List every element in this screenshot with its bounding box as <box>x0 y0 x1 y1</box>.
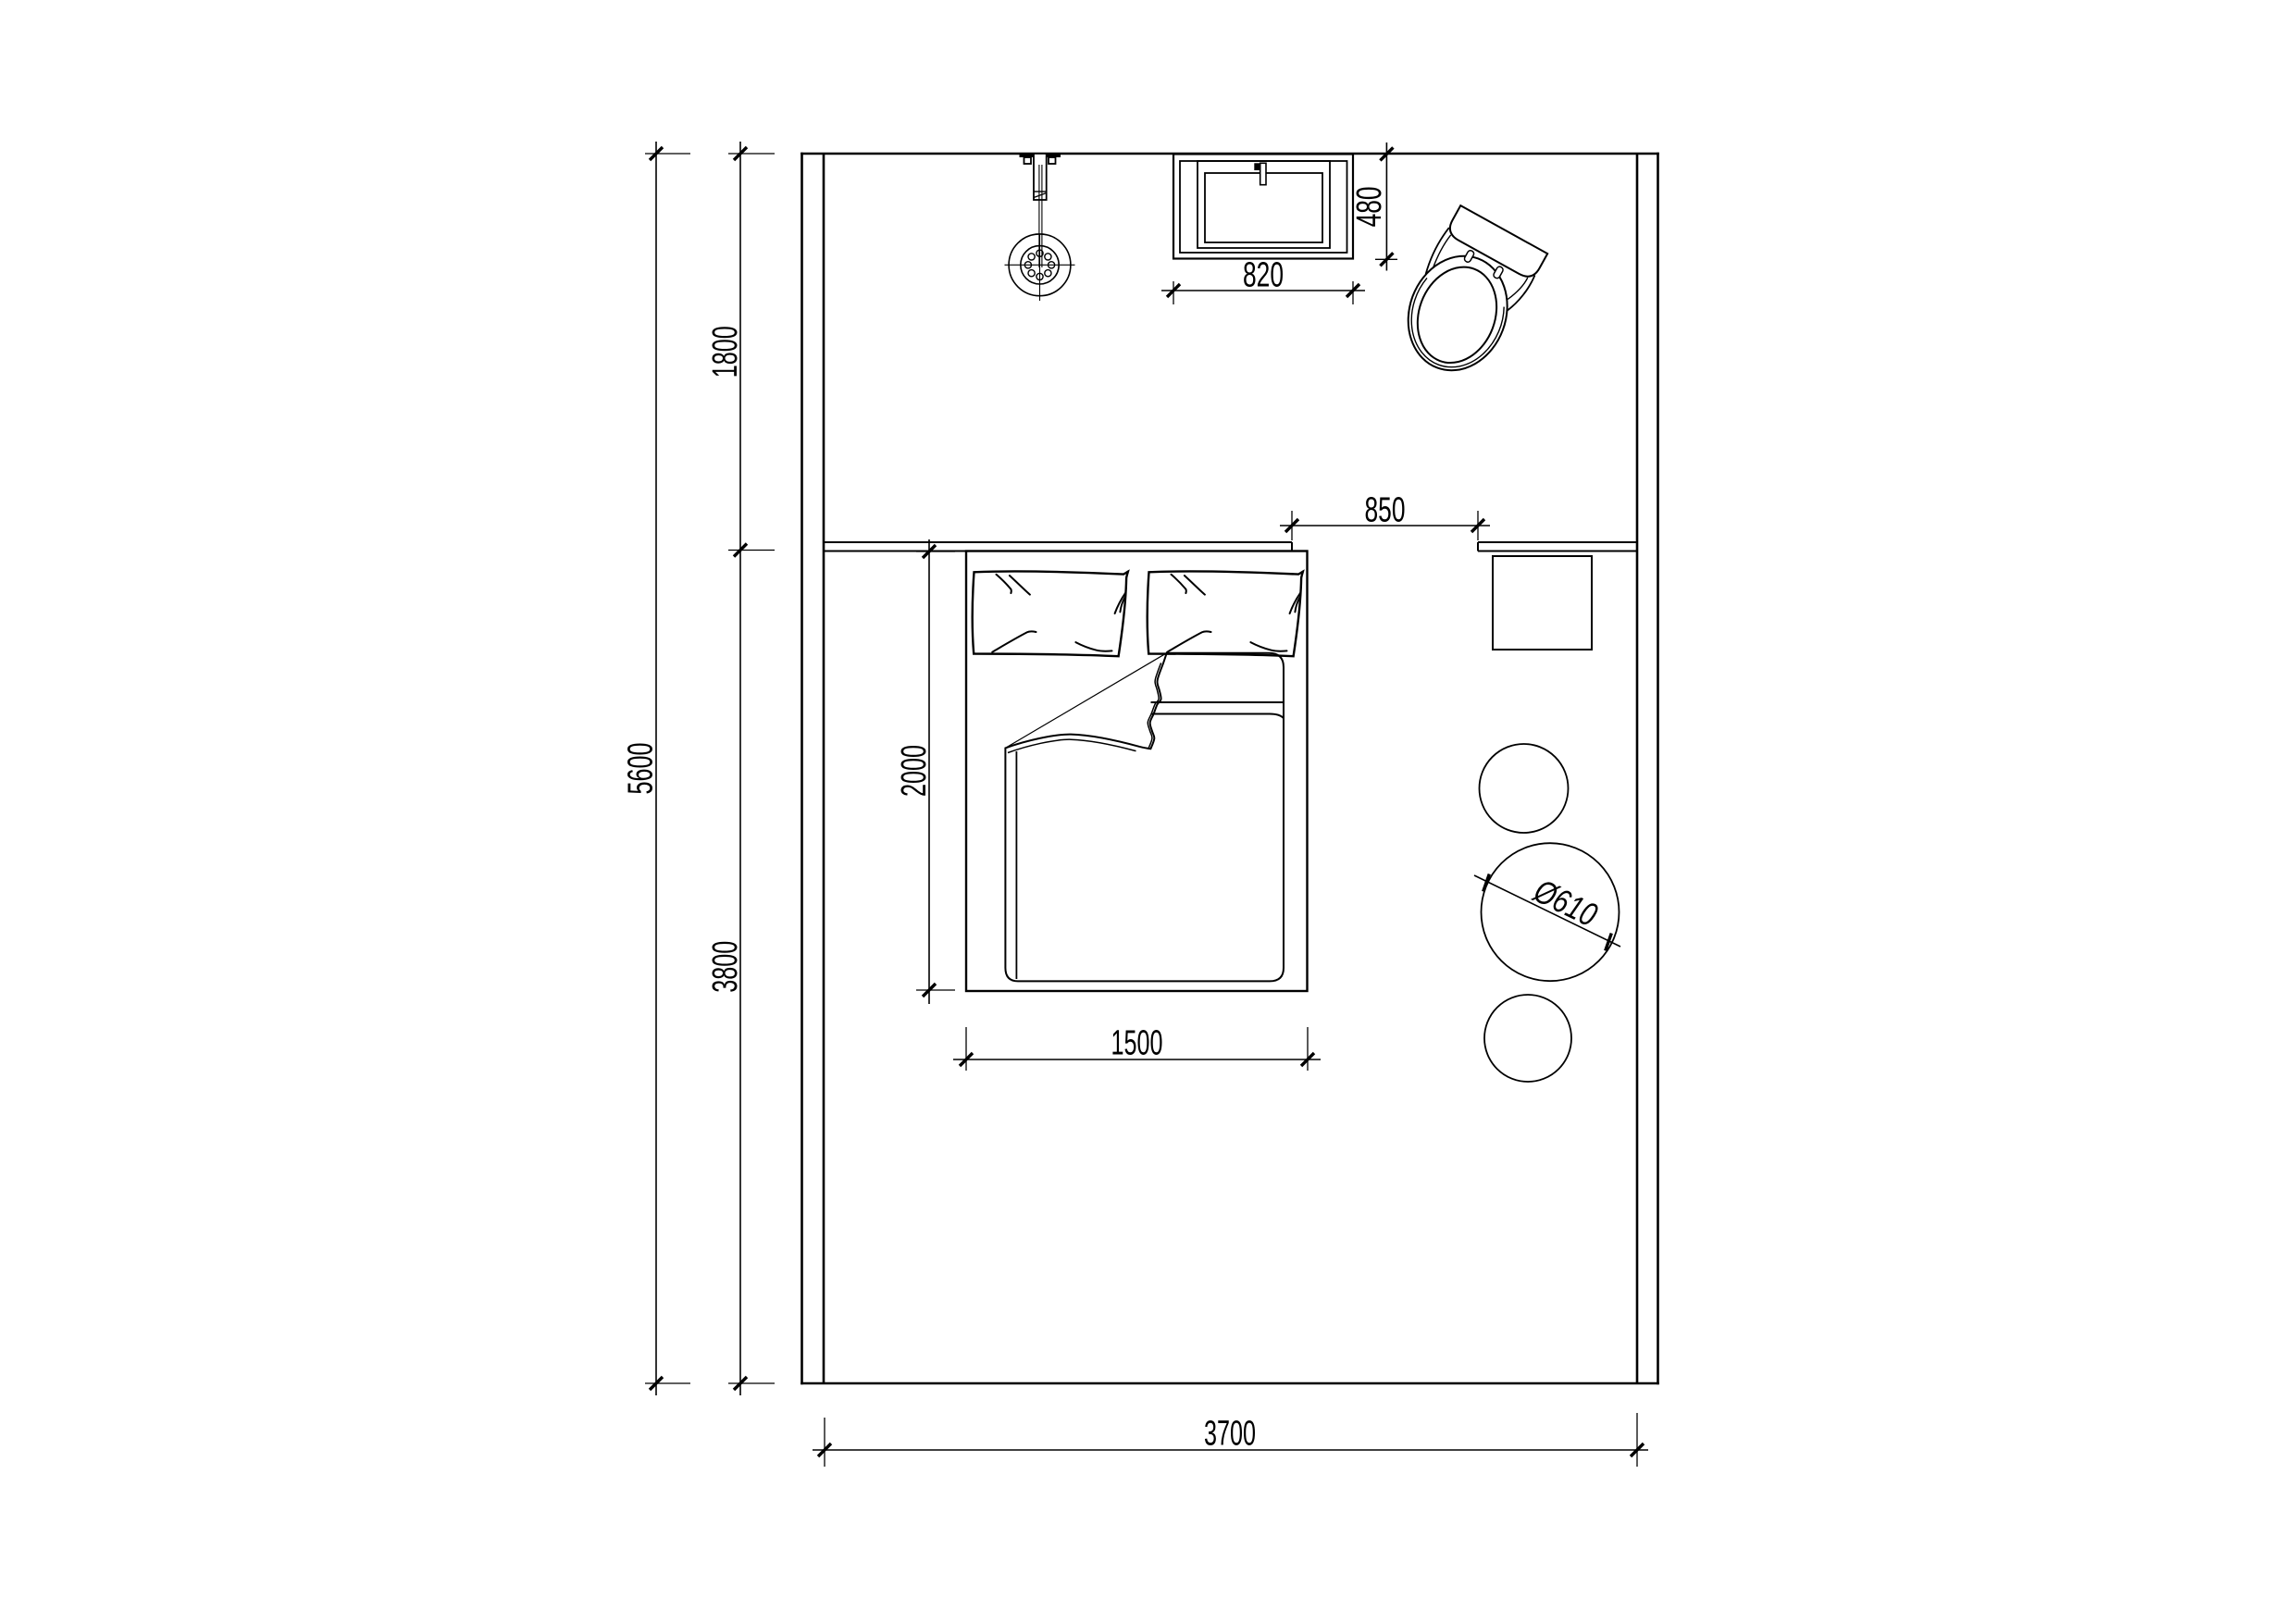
svg-text:3800: 3800 <box>706 941 745 993</box>
svg-text:850: 850 <box>1365 491 1406 530</box>
svg-text:2000: 2000 <box>895 745 934 797</box>
svg-text:480: 480 <box>1350 186 1389 227</box>
svg-text:1800: 1800 <box>706 326 745 378</box>
svg-text:3700: 3700 <box>1204 1415 1256 1454</box>
svg-text:820: 820 <box>1243 256 1284 295</box>
svg-text:5600: 5600 <box>622 743 661 795</box>
svg-text:1500: 1500 <box>1111 1024 1163 1063</box>
